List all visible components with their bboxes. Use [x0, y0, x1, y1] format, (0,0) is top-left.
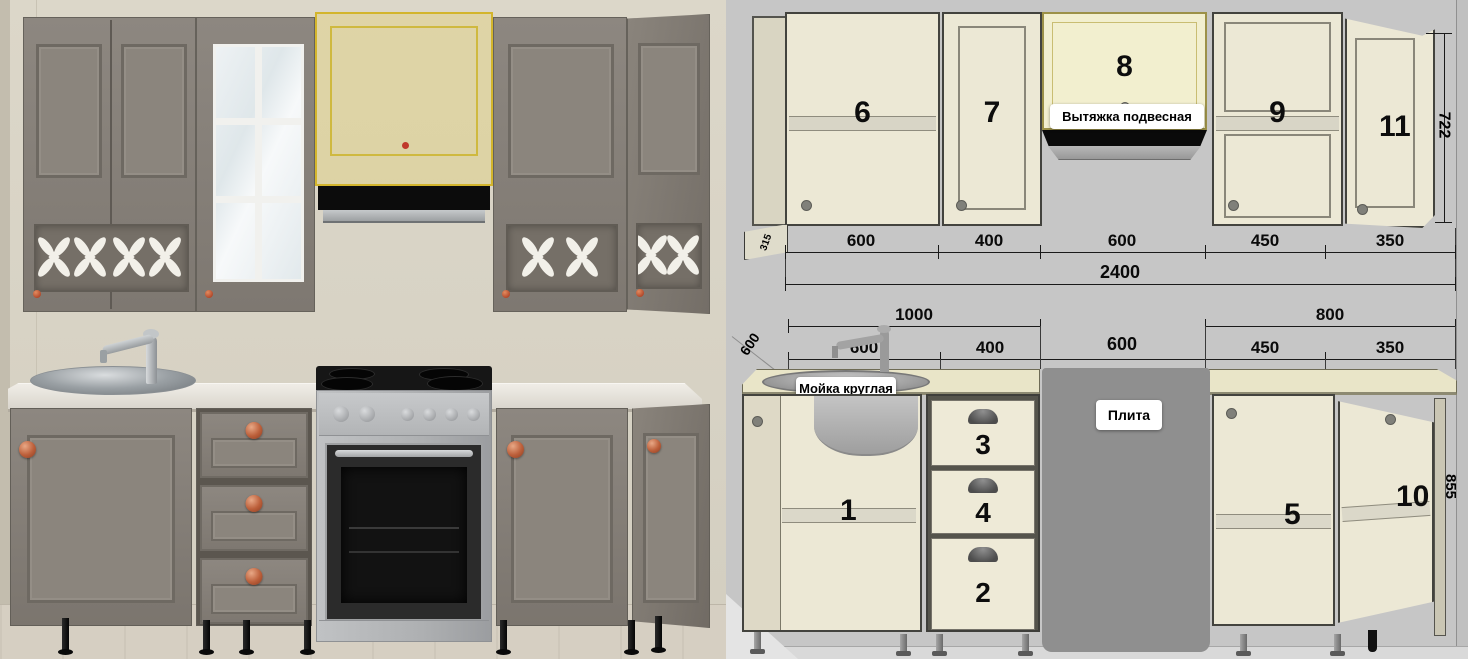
kitchen-planner-screenshot: 6 7 8 9 11 315: [0, 0, 1468, 659]
dimension-line-total: [785, 284, 1455, 285]
door-inset-panel: [27, 435, 175, 603]
base-cabinet-right[interactable]: [496, 408, 628, 626]
oven-handle[interactable]: [335, 450, 473, 457]
dim-base-400: 400: [976, 338, 1004, 358]
dim-upper-400: 400: [975, 231, 1003, 251]
stove-knob[interactable]: [445, 408, 458, 421]
cooker-hood-lip: [323, 210, 485, 223]
dim-tick: [1325, 245, 1326, 259]
door-inset-panel: [121, 44, 187, 178]
extension-line: [1205, 326, 1206, 369]
diagram-wall-cabinet-6: 6: [785, 12, 940, 226]
hood-canopy: [1048, 146, 1201, 160]
lattice-flower-ornament: [148, 231, 182, 283]
mullion-horizontal: [216, 118, 301, 125]
dim-tick: [785, 245, 786, 259]
base-drawer-unit[interactable]: [196, 408, 312, 626]
handle-dot: [801, 200, 812, 211]
diagram-wall-cabinet-9: 9: [1212, 12, 1343, 226]
cabinet-handle-knob[interactable]: [636, 289, 644, 297]
door-inset-panel: [638, 43, 700, 175]
cooker-stove[interactable]: [316, 366, 492, 642]
door-inset-panel: [36, 44, 102, 178]
cabinet-leg: [203, 620, 210, 652]
cabinet-leg: [1022, 634, 1029, 652]
dim-tick: [938, 245, 939, 259]
dim-tick: [1455, 277, 1456, 291]
diagram-faucet: [830, 324, 900, 374]
dim-base-height: 855: [1442, 474, 1459, 499]
stove-knob[interactable]: [423, 408, 436, 421]
dimension-line-1000: [788, 326, 1040, 327]
cabinet-side-panel: [744, 396, 781, 630]
stove-knob[interactable]: [401, 408, 414, 421]
cabinet-leg: [1240, 634, 1247, 652]
cabinet-leg: [936, 634, 943, 652]
handle-dot: [1357, 204, 1368, 215]
faucet-spout: [836, 334, 885, 350]
mullion-horizontal: [216, 196, 301, 203]
lattice-flower-ornament: [666, 229, 700, 281]
drawer-front[interactable]: [200, 412, 308, 478]
dimension-line-upper: [785, 252, 1455, 253]
cabinet-leg: [900, 634, 907, 652]
stove-label: Плита: [1096, 400, 1162, 430]
oven-window: [341, 467, 467, 603]
wall-cabinet-double-lattice[interactable]: [23, 17, 196, 312]
dimension-diagram: 6 7 8 9 11 315: [726, 0, 1468, 659]
cabinet-leg-black: [1368, 630, 1377, 652]
stove-dial[interactable]: [359, 406, 375, 422]
dim-base-450: 450: [1251, 338, 1279, 358]
extension-line: [940, 359, 941, 369]
cabinet-handle-knob[interactable]: [33, 290, 41, 298]
cabinet-leg: [655, 616, 662, 650]
drawer-knob: [968, 478, 998, 493]
lattice-cutout-panel: [506, 224, 618, 292]
cabinet-handle-knob[interactable]: [205, 290, 213, 298]
cabinet-number: 5: [1284, 500, 1301, 530]
mullion-vertical: [255, 47, 262, 279]
drawer-number: 3: [975, 431, 991, 459]
cooker-hood[interactable]: [318, 186, 490, 210]
cabinet-leg: [628, 620, 635, 652]
extension-line: [1426, 33, 1452, 34]
cabinet-number: 8: [1116, 52, 1133, 82]
dim-tick: [1455, 245, 1456, 259]
lattice-flower-ornament: [636, 229, 668, 281]
handle-dot: [752, 416, 763, 427]
dim-wall-depth: 315: [758, 232, 774, 251]
cabinet-number: 10: [1396, 482, 1429, 512]
wall-cabinet-lattice-right[interactable]: [493, 17, 627, 312]
drawer-knob[interactable]: [246, 568, 263, 585]
hood-dark-band: [1042, 130, 1207, 146]
burner: [322, 378, 372, 390]
burner: [428, 377, 482, 390]
stove-control-panel: [319, 393, 489, 436]
lattice-flower-ornament: [112, 231, 146, 283]
cabinet-number: 11: [1379, 112, 1411, 142]
extension-line: [788, 359, 789, 369]
cabinet-leg: [1334, 634, 1341, 652]
selection-back-face: [330, 26, 478, 156]
handle-dot: [1228, 200, 1239, 211]
oven-door[interactable]: [325, 443, 483, 621]
corner-cabinet-stile: [1434, 398, 1446, 636]
cabinet-handle-knob[interactable]: [507, 441, 524, 458]
cabinet-leg: [62, 618, 69, 652]
extension-line: [1455, 326, 1456, 369]
dim-total-2400: 2400: [1100, 262, 1140, 283]
wall-left-edge: [0, 0, 10, 659]
dim-group-1000: 1000: [895, 305, 933, 325]
diagram-base-cabinet-5: 5: [1212, 394, 1335, 626]
drawer-front-2: 2: [931, 538, 1035, 630]
diagram-base-cabinet-1: 1: [742, 394, 922, 632]
diagram-countertop-right: [1205, 369, 1457, 395]
cabinet-leg: [500, 620, 507, 652]
cabinet-handle-knob[interactable]: [647, 439, 661, 453]
drawer-knob: [968, 547, 998, 562]
dim-tick: [1040, 245, 1041, 259]
extension-line: [1040, 326, 1041, 369]
cabinet-number: 9: [1269, 98, 1286, 128]
cabinet-leg: [243, 620, 250, 652]
door-inset-panel: [643, 433, 699, 603]
dim-base-350: 350: [1376, 338, 1404, 358]
cabinet-number: 7: [984, 98, 1001, 128]
hood-label-text: Вытяжка подвесная: [1062, 109, 1192, 124]
stove-cooktop: [316, 366, 492, 390]
cabinet-leg: [304, 620, 311, 652]
dim-base-600b: 600: [1107, 334, 1137, 355]
dim-upper-600a: 600: [847, 231, 875, 251]
dim-wall-height: 722: [1434, 112, 1452, 139]
diagram-base-cabinet-10-corner: 10: [1338, 394, 1434, 630]
cabinet-number: 1: [840, 496, 857, 526]
dim-upper-450: 450: [1251, 231, 1279, 251]
cabinet-handle-knob[interactable]: [502, 290, 510, 298]
dim-upper-350: 350: [1376, 231, 1404, 251]
drawer-knob[interactable]: [246, 422, 263, 439]
oven-rack-line: [349, 551, 459, 553]
lattice-flower-ornament: [73, 231, 107, 283]
cabinet-leg: [754, 632, 761, 650]
dim-upper-600b: 600: [1108, 231, 1136, 251]
glass-pane-grid: [213, 44, 304, 282]
door-inset-panel: [508, 44, 614, 178]
door-lower-panel: [1224, 134, 1331, 218]
stove-knob[interactable]: [467, 408, 480, 421]
handle-dot: [1226, 408, 1237, 419]
selection-marker-dot: [402, 142, 409, 149]
cabinet-6-side-panel: [752, 16, 787, 226]
base-cabinet-sink[interactable]: [10, 408, 192, 626]
drawer-front[interactable]: [200, 558, 308, 624]
lattice-cutout-panel: [34, 224, 189, 292]
extension-line: [1325, 359, 1326, 369]
faucet-tip: [100, 350, 107, 363]
cabinet-number: 6: [854, 98, 871, 128]
dim-counter-depth: 600: [737, 330, 763, 358]
sink-bowl: [814, 396, 918, 456]
dimension-line-800: [1205, 326, 1455, 327]
drawer-front[interactable]: [200, 485, 308, 551]
drawer-inset-panel: [211, 584, 297, 614]
dim-group-800: 800: [1316, 305, 1344, 325]
hood-label: Вытяжка подвесная: [1050, 104, 1204, 129]
stove-label-text: Плита: [1108, 407, 1150, 423]
faucet-cap: [877, 325, 891, 333]
wall-cabinet-glass-door[interactable]: [196, 17, 315, 312]
base-cabinet-corner[interactable]: [632, 404, 710, 628]
drawer-front-3: 3: [931, 400, 1035, 466]
oven-rack-line: [349, 527, 459, 529]
drawer-knob: [968, 409, 998, 424]
handle-dot: [1385, 414, 1396, 425]
hood-cabinet-selection-box[interactable]: [315, 12, 493, 186]
cabinet-handle-knob[interactable]: [19, 441, 36, 458]
lattice-flower-ornament: [521, 231, 555, 283]
wall-cabinet-corner[interactable]: [627, 14, 710, 314]
shelf: [1216, 514, 1331, 529]
lattice-flower-ornament: [37, 231, 71, 283]
lattice-flower-ornament: [565, 231, 599, 283]
dim-tick: [785, 277, 786, 291]
render-3d-view: [0, 0, 726, 659]
diagram-wall-cabinet-7: 7: [942, 12, 1042, 226]
stove-body: [316, 390, 492, 642]
drawer-number: 4: [975, 499, 991, 527]
wall-depth-tag: 315: [744, 224, 788, 260]
handle-dot: [956, 200, 967, 211]
faucet[interactable]: [100, 328, 180, 388]
stove-bottom-drawer[interactable]: [319, 620, 489, 639]
diagram-wall-cabinet-11-corner: 11: [1345, 12, 1435, 228]
drawer-front-4: 4: [931, 470, 1035, 534]
drawer-number: 2: [975, 579, 991, 607]
dim-tick: [788, 319, 789, 333]
drawer-inset-panel: [211, 438, 297, 468]
drawer-knob[interactable]: [246, 495, 263, 512]
stove-dial[interactable]: [333, 406, 349, 422]
wall-corner-right: [1456, 0, 1468, 659]
door-inset-panel: [511, 435, 613, 603]
faucet-tip: [832, 346, 838, 358]
diagram-drawer-unit: 3 4 2: [926, 394, 1040, 632]
lattice-cutout-panel: [636, 223, 702, 289]
dim-tick: [1205, 245, 1206, 259]
drawer-inset-panel: [211, 511, 297, 541]
